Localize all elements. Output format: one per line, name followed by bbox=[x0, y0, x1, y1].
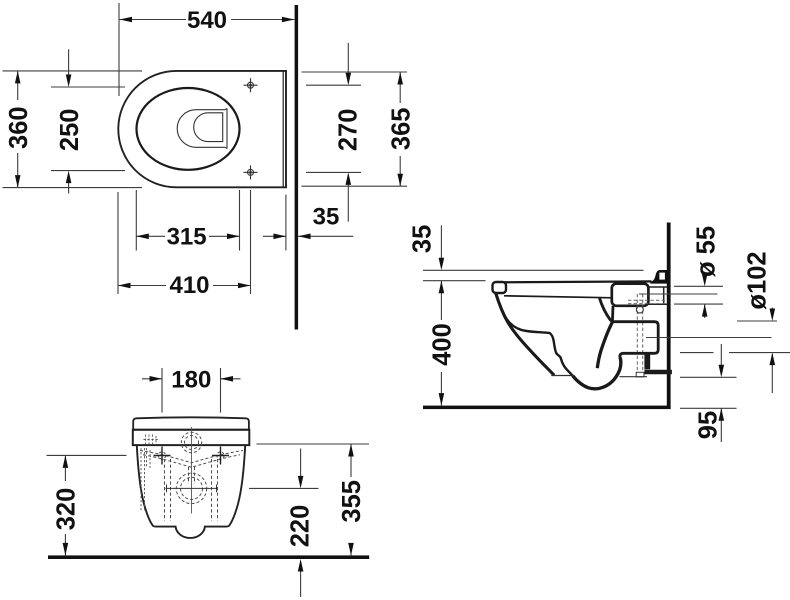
svg-text:180: 180 bbox=[171, 366, 211, 393]
svg-text:35: 35 bbox=[313, 204, 340, 231]
svg-text:365: 365 bbox=[387, 108, 415, 151]
svg-text:315: 315 bbox=[167, 224, 207, 251]
svg-text:540: 540 bbox=[187, 7, 227, 34]
svg-text:ø102: ø102 bbox=[744, 251, 772, 309]
svg-text:360: 360 bbox=[5, 106, 33, 149]
svg-text:355: 355 bbox=[338, 480, 366, 523]
svg-text:220: 220 bbox=[287, 505, 315, 548]
svg-text:35: 35 bbox=[409, 225, 437, 253]
svg-text:320: 320 bbox=[53, 488, 81, 531]
svg-text:270: 270 bbox=[335, 109, 363, 152]
svg-text:250: 250 bbox=[56, 109, 84, 152]
svg-text:ø 55: ø 55 bbox=[693, 226, 721, 277]
svg-text:410: 410 bbox=[169, 272, 209, 299]
svg-text:400: 400 bbox=[429, 323, 457, 366]
svg-text:95: 95 bbox=[695, 411, 723, 439]
